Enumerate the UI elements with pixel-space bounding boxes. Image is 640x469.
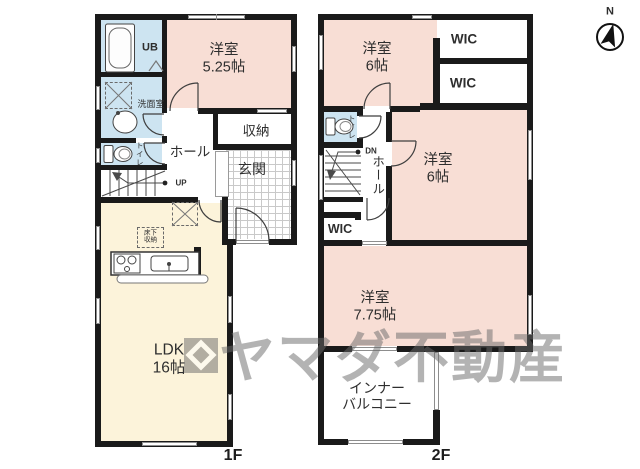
arrowhead bbox=[327, 170, 336, 180]
door-arcs-1f bbox=[143, 61, 269, 241]
counter-edge bbox=[117, 275, 208, 283]
door-arc bbox=[170, 83, 198, 111]
arrow-origin-dot bbox=[356, 150, 361, 155]
door-arc bbox=[367, 198, 389, 220]
toilet-tank-icon bbox=[326, 118, 335, 135]
door-arc bbox=[143, 114, 164, 135]
door-arc bbox=[364, 83, 390, 109]
faucet-dot bbox=[116, 111, 120, 115]
fixtures-2f bbox=[326, 118, 353, 135]
fixtures-1f bbox=[104, 24, 208, 283]
faucet-head bbox=[167, 262, 171, 266]
door-arc bbox=[144, 143, 165, 164]
door-arc bbox=[391, 141, 416, 166]
north-compass bbox=[597, 22, 623, 50]
toilet-tank-icon bbox=[104, 146, 113, 163]
stairs-2f bbox=[325, 150, 361, 195]
bathtub-icon bbox=[106, 24, 135, 72]
washer-x-mark bbox=[105, 82, 132, 109]
folding-door-mark bbox=[149, 61, 163, 71]
door-arc bbox=[359, 116, 381, 138]
door-arc bbox=[236, 208, 269, 241]
closet-x-mark bbox=[172, 202, 198, 226]
arrow-origin-dot bbox=[163, 181, 168, 186]
arrowhead bbox=[112, 172, 122, 181]
door-arc bbox=[199, 200, 221, 222]
stairs-up-arrow bbox=[116, 175, 165, 183]
floorplan-canvas: UB 洋室 5.25帖 収納 洗面室 トイレ ホール 玄関 UP 床下 収納 L… bbox=[0, 0, 640, 469]
door-arcs-2f bbox=[359, 83, 416, 220]
stairs-1f bbox=[102, 170, 167, 196]
